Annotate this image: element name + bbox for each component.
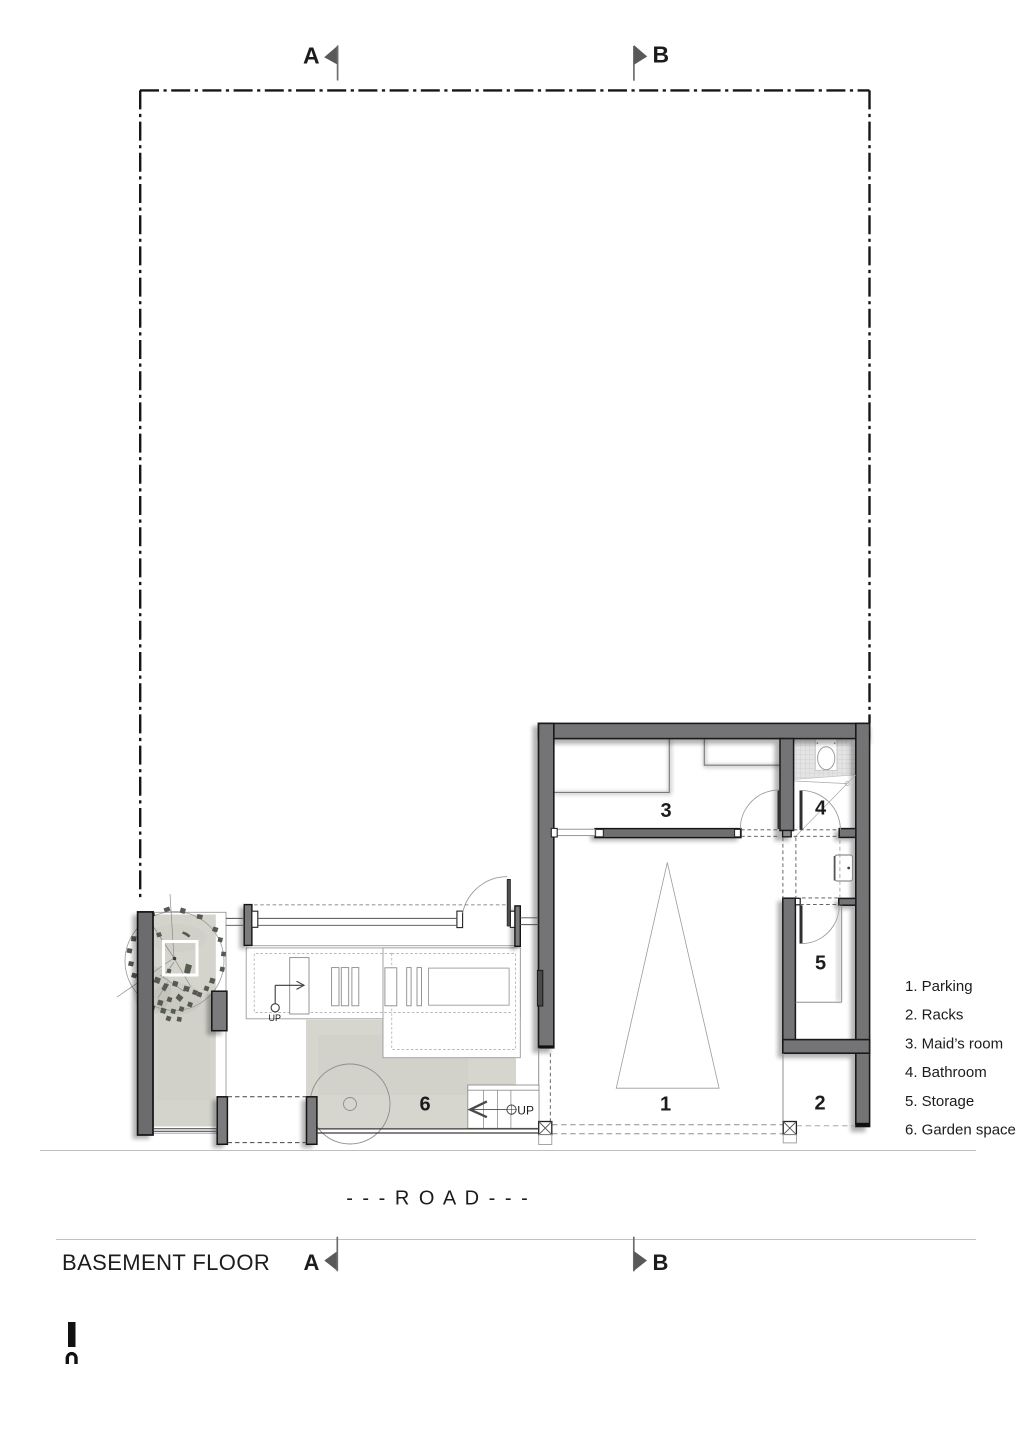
- svg-text:6. Garden space: 6. Garden space: [905, 1122, 1016, 1139]
- svg-text:3: 3: [661, 800, 672, 822]
- svg-text:A: A: [304, 1250, 320, 1275]
- svg-text:A: A: [303, 43, 320, 69]
- svg-text:4. Bathroom: 4. Bathroom: [905, 1064, 987, 1081]
- svg-text:- - - R O A D - - -: - - - R O A D - - -: [346, 1188, 530, 1210]
- svg-text:BASEMENT FLOOR: BASEMENT FLOOR: [62, 1250, 270, 1275]
- svg-text:6: 6: [420, 1094, 431, 1116]
- svg-text:2: 2: [815, 1093, 826, 1115]
- svg-text:5: 5: [815, 953, 826, 975]
- svg-text:4: 4: [815, 798, 827, 820]
- svg-text:UP: UP: [269, 1013, 282, 1023]
- svg-text:B: B: [653, 1250, 669, 1275]
- svg-text:B: B: [653, 42, 670, 68]
- svg-text:1. Parking: 1. Parking: [905, 978, 973, 995]
- svg-text:5. Storage: 5. Storage: [905, 1093, 974, 1110]
- svg-text:1: 1: [660, 1094, 671, 1116]
- svg-text:UP: UP: [517, 1104, 534, 1118]
- svg-text:3. Maid’s room: 3. Maid’s room: [905, 1035, 1003, 1052]
- svg-text:2. Racks: 2. Racks: [905, 1007, 963, 1024]
